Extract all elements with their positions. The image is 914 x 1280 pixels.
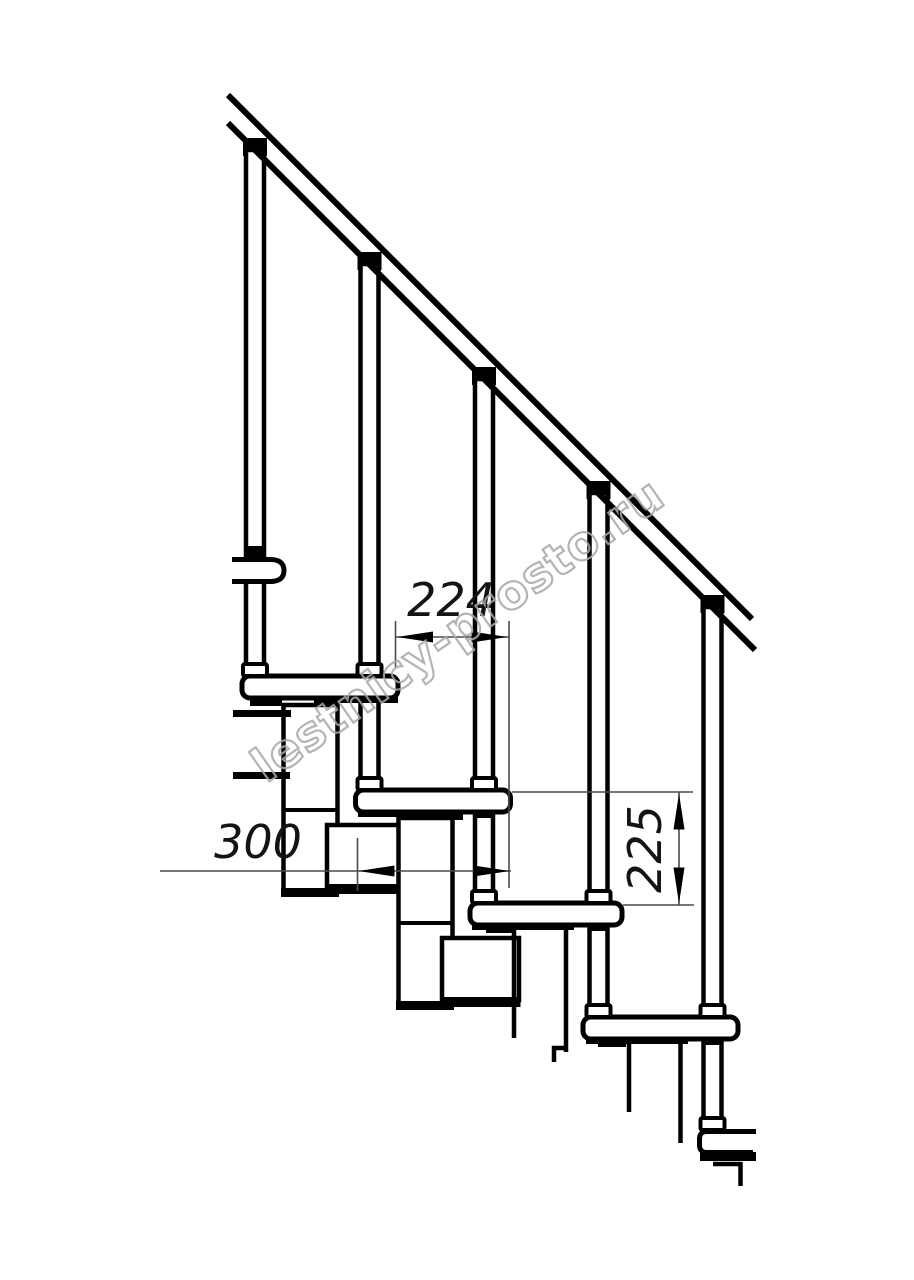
arrowhead-up [674,794,685,830]
tread3-baluster-nut [589,923,609,931]
tread4-baluster-nut [703,1037,723,1045]
module-connector [442,938,519,1000]
baluster-5 [701,595,725,1130]
baluster-tube [246,150,264,676]
module-chain-5-partial [713,1162,741,1186]
tread3-foot [486,923,514,933]
collar [243,664,267,676]
wall-line [233,710,291,717]
tread-5-cut [700,1132,757,1153]
staircase-drawing-canvas: 224 300 225 lestnicy-prosto.ru [0,0,914,1280]
arrowhead-down [674,868,685,904]
dimension-label-225: 225 [618,805,672,893]
module-hook-line [554,1048,566,1062]
baluster-1 [243,138,267,676]
baluster-tube [590,493,608,1017]
dimension-label-300: 300 [214,815,302,869]
tread-3 [470,903,622,925]
module-connector-bar [441,997,521,1007]
tread4-foot [598,1037,626,1047]
tread2-baluster-nut [474,810,494,818]
collar [701,1005,725,1017]
collar [587,891,611,903]
module-chain-4-partial [629,1042,681,1143]
collar [472,778,496,790]
tread-2 [356,790,511,812]
bracket-body [232,560,284,582]
collar [587,1005,611,1017]
staircase-section-drawing: 224 300 225 lestnicy-prosto.ru [0,0,914,1280]
module-connector-bar [326,884,406,894]
baluster-tube [704,607,722,1130]
tread2-foot [437,810,463,820]
module-connector [327,825,404,887]
bracket-collar [245,546,266,558]
collar [472,891,496,903]
tread-4 [583,1017,738,1039]
tread1-foot [250,696,282,706]
tread5-bar [722,1152,756,1161]
collar [701,1118,725,1130]
collar [358,778,382,790]
module-chain-3-partial [514,929,566,1062]
handrail-bracket [232,546,284,582]
